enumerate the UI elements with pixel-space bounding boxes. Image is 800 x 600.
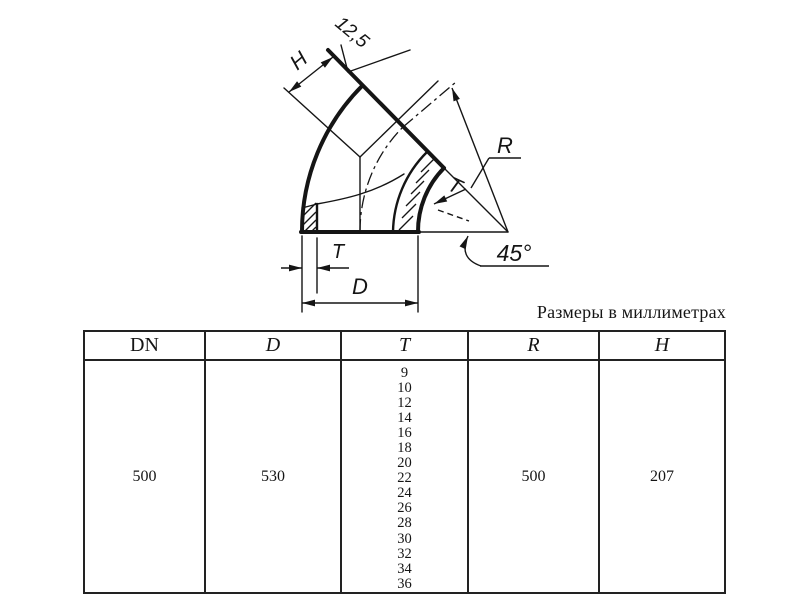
cell-t-values: 91012141618202224262830323436 — [342, 361, 469, 592]
cell-dn: 500 — [85, 361, 206, 592]
h-dim-label: H — [286, 47, 313, 75]
list-item: 9 — [401, 366, 408, 381]
dimension-angle: 45° — [465, 236, 549, 266]
list-item: 20 — [397, 456, 412, 471]
dimension-h: H — [286, 47, 333, 92]
col-header-d: D — [206, 332, 342, 359]
dimension-t-bottom: T — [281, 236, 349, 312]
r-dim-label: R — [497, 133, 513, 158]
dimensions-table: DN D T R H 500 530 910121416182022242628… — [83, 330, 726, 594]
list-item: 16 — [397, 426, 412, 441]
cell-r: 500 — [469, 361, 600, 592]
list-item: 34 — [397, 562, 412, 577]
list-item: 32 — [397, 547, 412, 562]
list-item: 12 — [397, 396, 412, 411]
t-wall-dim-label: T — [444, 173, 467, 200]
list-item: 22 — [397, 471, 412, 486]
roughness-value: 12,5 — [331, 13, 373, 53]
dimension-t-wall: T — [434, 173, 469, 221]
section-hatching — [303, 159, 434, 232]
col-header-h: H — [600, 332, 724, 359]
list-item: 30 — [397, 532, 412, 547]
units-note: Размеры в миллиметрах — [537, 302, 726, 323]
list-item: 14 — [397, 411, 412, 426]
dimension-d: D — [302, 236, 418, 312]
list-item: 18 — [397, 441, 412, 456]
d-dim-label: D — [352, 274, 368, 299]
col-header-r: R — [469, 332, 600, 359]
col-header-dn: DN — [85, 332, 206, 359]
cell-h: 207 — [600, 361, 724, 592]
table-data-row: 500 530 91012141618202224262830323436 50… — [85, 361, 724, 592]
t-bottom-dim-label: T — [332, 241, 346, 263]
elbow-outline — [301, 50, 444, 232]
angle-dim-label: 45° — [497, 240, 532, 266]
list-item: 36 — [397, 577, 412, 592]
table-header-row: DN D T R H — [85, 332, 724, 361]
col-header-t: T — [342, 332, 469, 359]
cell-d: 530 — [206, 361, 342, 592]
list-item: 10 — [397, 381, 412, 396]
page: H 12,5 R T 45° — [0, 0, 800, 600]
list-item: 24 — [397, 486, 412, 501]
list-item: 26 — [397, 501, 412, 516]
list-item: 28 — [397, 516, 412, 531]
